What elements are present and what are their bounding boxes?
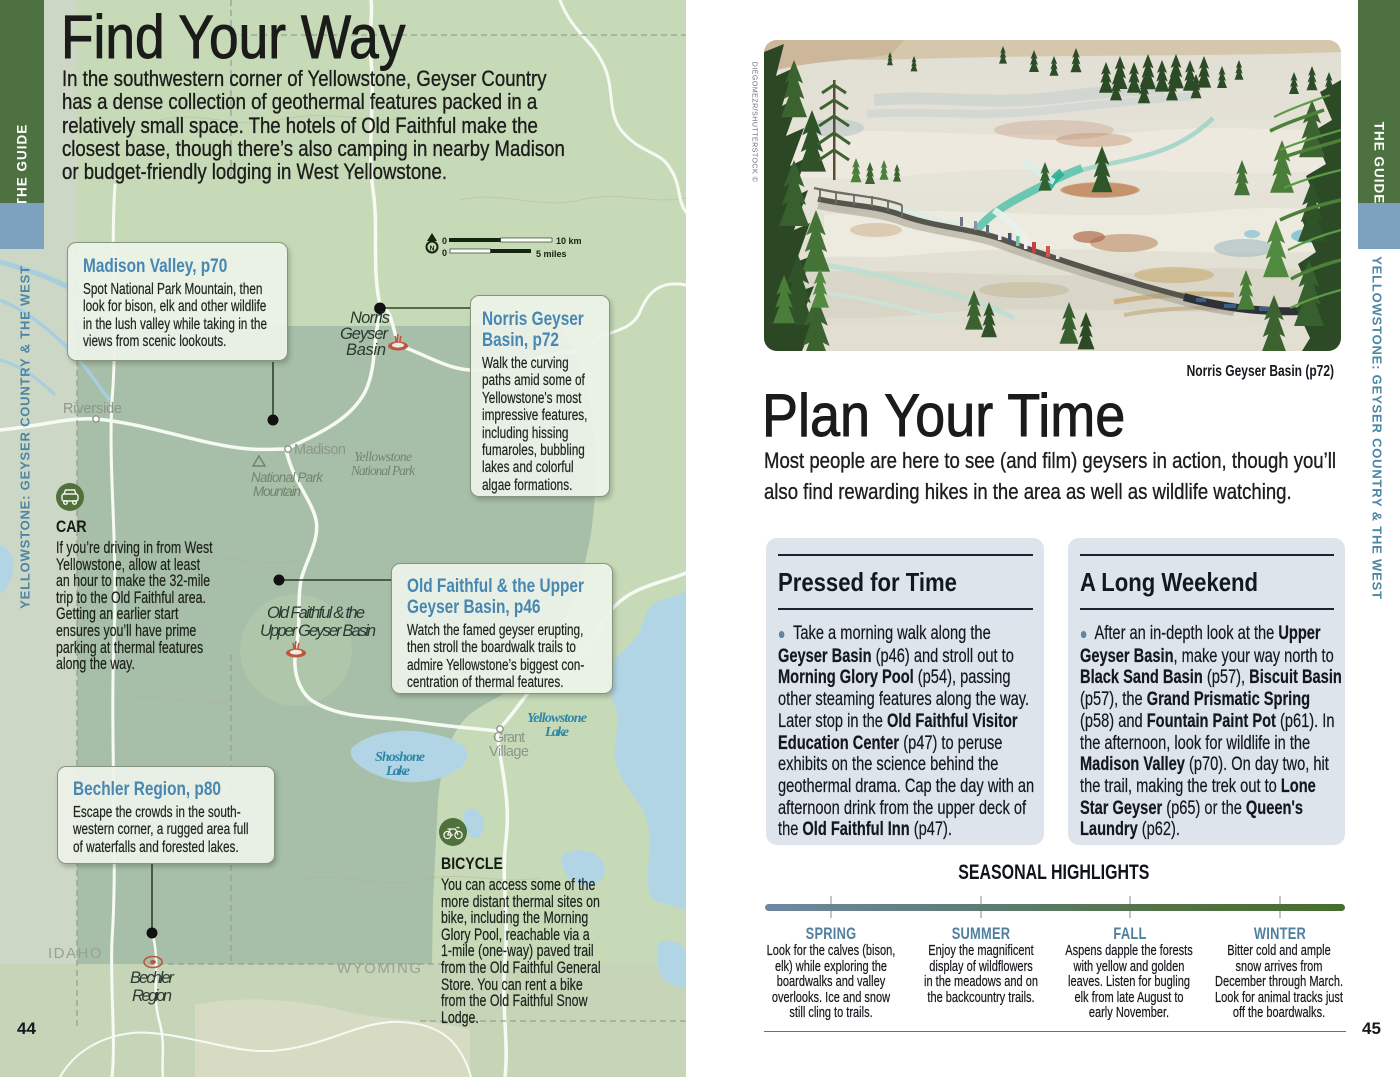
svg-text:National Park: National Park <box>251 470 324 485</box>
svg-text:Village: Village <box>489 744 529 760</box>
svg-text:Madison: Madison <box>294 442 346 458</box>
svg-text:0: 0 <box>442 236 447 246</box>
svg-text:5 miles: 5 miles <box>536 249 567 259</box>
svg-text:Riverside: Riverside <box>63 401 122 417</box>
svg-text:Yellowstone: Yellowstone <box>354 449 412 464</box>
svg-text:Lake: Lake <box>544 725 569 740</box>
svg-text:Shoshone: Shoshone <box>375 750 425 765</box>
svg-text:Basin: Basin <box>346 341 386 359</box>
svg-text:10 km: 10 km <box>556 236 582 246</box>
svg-text:Bechler: Bechler <box>130 969 176 987</box>
svg-text:IDAHO: IDAHO <box>48 945 103 962</box>
svg-text:0: 0 <box>442 248 447 258</box>
svg-text:Yellowstone: Yellowstone <box>527 711 587 726</box>
svg-text:Upper Geyser Basin: Upper Geyser Basin <box>260 622 376 640</box>
svg-text:N: N <box>429 246 434 253</box>
svg-text:Old Faithful & the: Old Faithful & the <box>267 604 365 622</box>
svg-text:Mountain: Mountain <box>253 484 301 499</box>
svg-text:Lake: Lake <box>385 764 410 779</box>
svg-text:WYOMING: WYOMING <box>337 960 423 977</box>
svg-text:Region: Region <box>132 987 172 1005</box>
svg-text:National Park: National Park <box>350 463 416 478</box>
